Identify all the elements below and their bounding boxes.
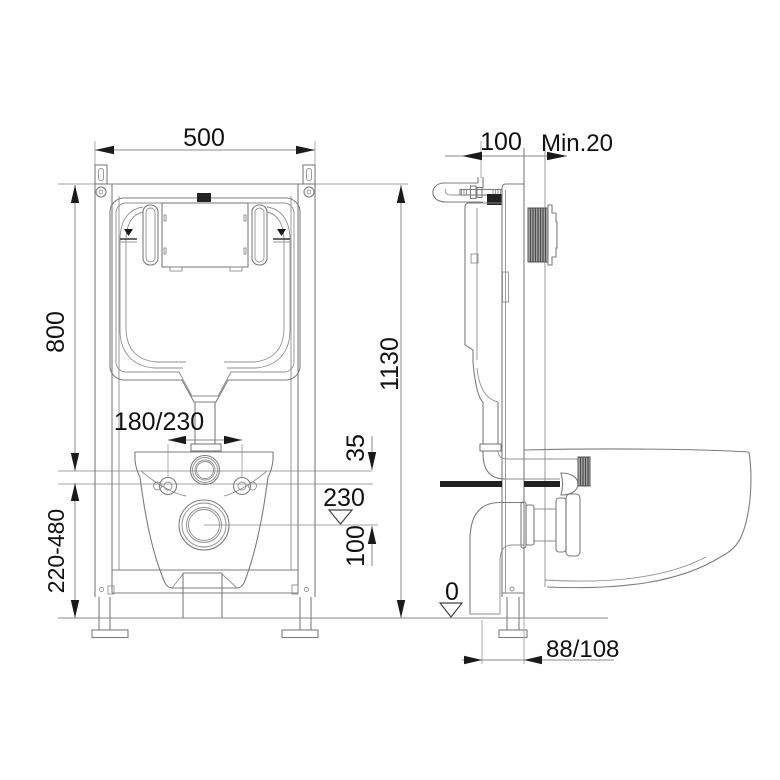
- drain-elbow-behind-wall: [470, 503, 524, 615]
- dim-outlet-height-label: 230: [323, 484, 365, 512]
- slot-right: [252, 205, 267, 265]
- dim-outlet-drop-label: 100: [342, 525, 370, 567]
- top-cap: [197, 193, 211, 202]
- dim-wall-min-label: Min.20: [541, 130, 613, 157]
- dim-depth-label: 100: [480, 128, 522, 156]
- flush-plate-conduit: [528, 205, 557, 265]
- foot-plate-left: [92, 630, 128, 638]
- dome-nut: [561, 473, 578, 495]
- level-triangle-outlet: [329, 510, 352, 524]
- dim-leg-range-label: 220-480: [43, 509, 69, 593]
- water-level-mark-right: [273, 229, 290, 242]
- ribbed-sleeve: [578, 457, 590, 486]
- side-top-dimensions: 100 Min.20: [445, 128, 613, 178]
- wall-anchor: [433, 177, 502, 205]
- dim-width-label: 500: [183, 124, 225, 152]
- bolt-hole-right: [234, 478, 257, 495]
- side-bottom-dimension: 88/108: [462, 618, 619, 664]
- flush-connection: [191, 456, 220, 485]
- hanger-lug-right: [303, 165, 315, 184]
- front-view: 500 800 220-480 1130 180/230 35 230: [42, 124, 608, 638]
- dim-overall-height-label: 1130: [376, 337, 404, 391]
- drain-connector: [521, 494, 580, 556]
- floor-level-mark: 0: [440, 578, 462, 617]
- side-view: 100 Min.20: [433, 128, 751, 664]
- slot-left: [143, 205, 158, 265]
- dim-floor-level-label: 0: [445, 578, 459, 606]
- foot-plate-right: [282, 630, 318, 638]
- dim-frame-height-label: 800: [42, 311, 70, 353]
- dim-bolt-spacing-label: 180/230: [114, 408, 204, 436]
- drain-duct: [183, 573, 222, 618]
- dim-outlet-offset-label: 88/108: [546, 636, 619, 663]
- dim-flush-offset-label: 35: [342, 434, 370, 462]
- foot-plate-side: [499, 630, 527, 638]
- frame-upright-side: [499, 184, 527, 638]
- water-level-mark-left: [120, 229, 137, 242]
- wall-penetrations: [440, 457, 590, 495]
- bowl-side: [524, 449, 751, 588]
- technical-drawing: 500 800 220-480 1130 180/230 35 230: [0, 0, 780, 780]
- access-opening: [162, 203, 248, 271]
- mounting-rod: [440, 481, 502, 487]
- nut: [471, 186, 477, 199]
- hanger-lug-left: [95, 165, 107, 184]
